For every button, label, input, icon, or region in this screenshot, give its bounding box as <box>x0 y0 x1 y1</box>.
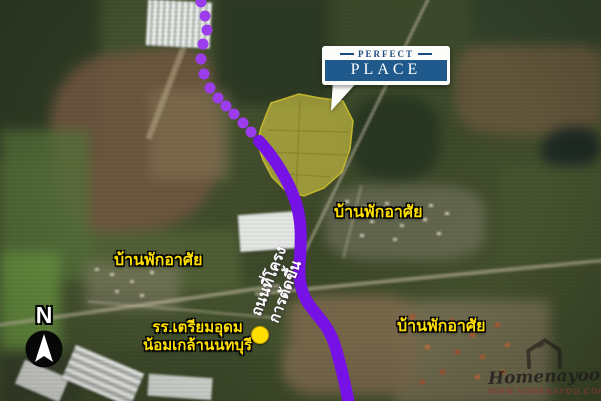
planned-route-dots <box>196 0 257 138</box>
compass-north-letter: N <box>24 302 64 328</box>
residential-label-right: บ้านพักอาศัย <box>397 318 485 336</box>
school-label-line1: รร.เตรียมอุดม <box>152 319 243 336</box>
homenayoo-watermark: Homenayoo WWW.HOMENAYOO.COM <box>488 336 600 396</box>
residential-label-left: บ้านพักอาศัย <box>114 252 202 270</box>
watermark-brand: Homenayoo <box>488 367 601 388</box>
logo-brand-top: PERFECT <box>325 47 447 60</box>
compass-arrow-icon <box>24 328 64 370</box>
map-canvas: PERFECT PLACE บ้านพักอาศัย บ้านพักอาศัย … <box>0 0 601 401</box>
school-label: รร.เตรียมอุดม น้อมเกล้านนทบุรี <box>143 319 252 355</box>
school-label-line2: น้อมเกล้านนทบุรี <box>143 337 252 354</box>
logo-brand-bottom: PLACE <box>325 60 447 81</box>
project-site-highlight <box>257 94 353 196</box>
school-marker-dot <box>251 326 269 344</box>
compass: N <box>24 302 64 375</box>
residential-label-top: บ้านพักอาศัย <box>334 204 422 222</box>
house-icon <box>518 336 570 369</box>
perfect-place-logo: PERFECT PLACE <box>322 46 450 85</box>
